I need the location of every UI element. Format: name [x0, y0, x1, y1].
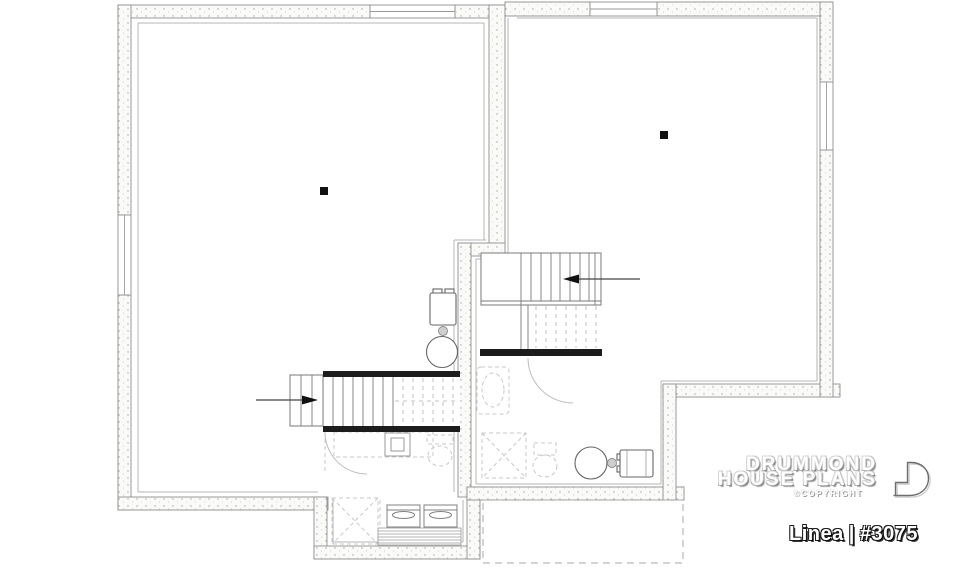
title-block: DRUMMOND HOUSE PLANS ©COPYRIGHT Linea|#3… — [704, 451, 934, 546]
support-post-right — [660, 131, 668, 139]
plan-title-separator: | — [844, 523, 860, 545]
laundry-cabinet-dashed — [334, 432, 433, 457]
door-arc-laundry — [325, 432, 367, 474]
window-left — [118, 215, 131, 295]
drummond-d-monogram-icon — [882, 451, 934, 506]
stair-wall-black-bottom — [323, 426, 460, 432]
plan-name: Linea — [789, 523, 844, 545]
floor-plan-canvas: DRUMMOND HOUSE PLANS ©COPYRIGHT Linea|#3… — [0, 0, 960, 569]
brand-name-line2: HOUSE PLANS — [718, 472, 877, 487]
staircase-lower-flight — [256, 371, 460, 432]
valve-icon — [439, 327, 448, 336]
window-top-right — [590, 2, 657, 16]
sink-dashed — [477, 367, 509, 414]
drain-grate — [378, 528, 461, 545]
door-arc-bathroom — [528, 358, 573, 403]
staircase-upper-flight — [480, 253, 640, 356]
valve-2-icon — [608, 459, 617, 468]
plan-number: #3075 — [860, 523, 918, 545]
plan-name-and-number: Linea|#3075 — [704, 523, 934, 546]
toilet-dashed — [533, 443, 557, 477]
stair-beam-black — [480, 349, 602, 356]
laundry-tub — [385, 433, 410, 456]
window-right — [820, 82, 833, 150]
furnace — [430, 289, 456, 325]
toilet-2-dashed — [427, 435, 453, 466]
window-top-left — [370, 5, 455, 18]
shower-dashed — [482, 433, 526, 478]
dryer — [424, 505, 457, 527]
shower-box-dashed — [332, 498, 380, 544]
stair-wall-black-top — [323, 371, 460, 377]
support-post-left — [320, 187, 328, 195]
washer — [387, 505, 420, 527]
water-heater — [427, 337, 458, 368]
water-heater-2 — [575, 447, 607, 479]
unexcavated-area-dashed — [483, 500, 683, 563]
air-handler — [617, 450, 653, 477]
copyright-text: ©COPYRIGHT — [794, 489, 877, 498]
